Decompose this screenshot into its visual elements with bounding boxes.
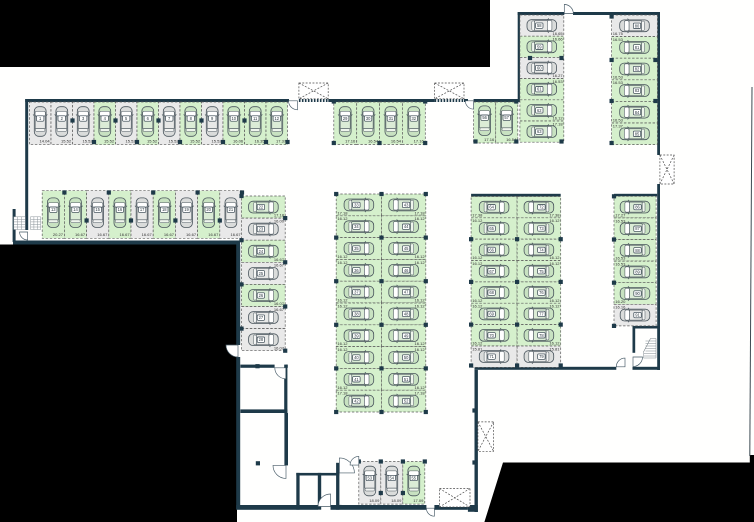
svg-text:46: 46	[404, 268, 409, 273]
svg-text:20.27: 20.27	[53, 232, 64, 237]
svg-text:39: 39	[354, 333, 359, 338]
svg-text:50: 50	[404, 355, 409, 360]
svg-text:91: 91	[635, 313, 640, 318]
svg-text:17.18: 17.18	[414, 391, 425, 396]
svg-text:16.12: 16.12	[472, 341, 483, 346]
svg-text:17.16: 17.16	[484, 137, 495, 142]
svg-text:55: 55	[412, 476, 417, 481]
svg-text:16.67: 16.67	[230, 232, 241, 237]
svg-text:38: 38	[354, 311, 359, 316]
svg-text:16.67: 16.67	[164, 232, 175, 237]
svg-text:15.52: 15.52	[211, 139, 222, 144]
svg-text:15: 15	[95, 207, 100, 212]
svg-text:19: 19	[184, 207, 189, 212]
svg-text:16.75: 16.75	[613, 31, 624, 36]
svg-text:16.67: 16.67	[75, 232, 86, 237]
svg-text:31: 31	[389, 116, 394, 121]
svg-text:17.18: 17.18	[414, 210, 425, 215]
svg-text:79: 79	[539, 354, 544, 359]
svg-text:16.12: 16.12	[337, 298, 348, 303]
svg-text:29: 29	[343, 116, 348, 121]
svg-text:15.52: 15.52	[125, 139, 136, 144]
svg-text:82: 82	[635, 67, 640, 72]
svg-text:16.12: 16.12	[337, 303, 348, 308]
svg-text:16.53: 16.53	[615, 262, 626, 267]
svg-text:48: 48	[404, 311, 409, 316]
svg-text:16.53: 16.53	[615, 218, 626, 223]
svg-text:49: 49	[404, 333, 409, 338]
svg-text:15.52: 15.52	[82, 139, 93, 144]
svg-text:16.12: 16.12	[337, 385, 348, 390]
svg-text:88: 88	[635, 248, 640, 253]
svg-text:15.52: 15.52	[61, 139, 72, 144]
svg-text:18.09: 18.09	[369, 498, 380, 503]
svg-text:16.12: 16.12	[414, 303, 425, 308]
svg-text:35: 35	[354, 246, 359, 251]
svg-text:68: 68	[489, 290, 494, 295]
svg-text:17.18: 17.18	[337, 210, 348, 215]
svg-text:16.12: 16.12	[414, 260, 425, 265]
svg-text:36: 36	[354, 268, 359, 273]
svg-text:80: 80	[635, 23, 640, 28]
svg-text:78: 78	[539, 333, 544, 338]
svg-text:42: 42	[354, 399, 359, 404]
svg-text:17.18: 17.18	[552, 121, 563, 126]
svg-text:11: 11	[253, 116, 258, 121]
svg-text:16.12: 16.12	[549, 255, 560, 260]
svg-text:26: 26	[259, 293, 264, 298]
svg-text:73: 73	[539, 226, 544, 231]
svg-text:85: 85	[635, 131, 640, 136]
svg-text:33: 33	[354, 203, 359, 208]
svg-text:16.12: 16.12	[414, 347, 425, 352]
svg-text:15.52: 15.52	[168, 139, 179, 144]
svg-text:40: 40	[354, 355, 359, 360]
svg-text:84: 84	[635, 110, 640, 115]
svg-text:16.12: 16.12	[472, 255, 483, 260]
svg-text:17: 17	[140, 207, 145, 212]
svg-text:90: 90	[635, 291, 640, 296]
svg-text:18: 18	[162, 207, 167, 212]
svg-text:14: 14	[73, 207, 78, 212]
svg-text:16.20: 16.20	[615, 299, 626, 304]
svg-text:14.04: 14.04	[39, 139, 50, 144]
svg-text:17.37: 17.37	[613, 123, 624, 128]
svg-text:72: 72	[539, 205, 544, 210]
svg-text:54: 54	[390, 476, 395, 481]
svg-text:16.54: 16.54	[368, 138, 379, 143]
svg-text:16.67: 16.67	[97, 232, 108, 237]
svg-text:16.53: 16.53	[613, 80, 624, 85]
svg-text:16.12: 16.12	[549, 218, 560, 223]
svg-text:16.12: 16.12	[549, 261, 560, 266]
svg-text:34: 34	[354, 224, 359, 229]
svg-text:20: 20	[206, 207, 211, 212]
svg-text:59: 59	[537, 44, 542, 49]
svg-text:23: 23	[259, 227, 264, 232]
svg-text:16.12: 16.12	[414, 298, 425, 303]
svg-text:16.53: 16.53	[613, 74, 624, 79]
svg-text:56: 56	[482, 115, 487, 120]
svg-text:16.66: 16.66	[552, 37, 563, 42]
svg-text:52: 52	[404, 399, 409, 404]
svg-text:16.12: 16.12	[549, 304, 560, 309]
svg-text:16.12: 16.12	[414, 216, 425, 221]
svg-text:16.12: 16.12	[472, 304, 483, 309]
svg-text:25: 25	[259, 271, 264, 276]
svg-text:17.38: 17.38	[472, 212, 483, 217]
svg-text:28: 28	[259, 337, 264, 342]
svg-text:71: 71	[489, 354, 494, 359]
svg-text:16.12: 16.12	[414, 385, 425, 390]
svg-text:74: 74	[539, 247, 544, 252]
svg-text:15.81: 15.81	[549, 346, 560, 351]
svg-text:32: 32	[412, 116, 417, 121]
svg-text:70: 70	[489, 333, 494, 338]
svg-text:65: 65	[489, 226, 494, 231]
svg-text:16.12: 16.12	[472, 298, 483, 303]
svg-text:12: 12	[275, 116, 280, 121]
svg-text:27: 27	[259, 315, 264, 320]
svg-text:15.52: 15.52	[190, 139, 201, 144]
svg-text:61: 61	[537, 87, 542, 92]
svg-text:66: 66	[489, 247, 494, 252]
svg-text:51: 51	[404, 377, 409, 382]
svg-text:67: 67	[489, 269, 494, 274]
svg-text:75: 75	[539, 269, 544, 274]
svg-text:60: 60	[537, 66, 542, 71]
svg-text:16.12: 16.12	[472, 261, 483, 266]
svg-text:62: 62	[537, 108, 542, 113]
svg-text:89: 89	[635, 270, 640, 275]
svg-text:16.53: 16.53	[613, 37, 624, 42]
svg-text:77: 77	[539, 312, 544, 317]
svg-text:22: 22	[259, 205, 264, 210]
svg-text:15.52: 15.52	[147, 139, 158, 144]
svg-text:16.35: 16.35	[254, 139, 265, 144]
svg-text:16.53: 16.53	[615, 256, 626, 261]
svg-text:15.81: 15.81	[472, 346, 483, 351]
svg-text:16.12: 16.12	[414, 254, 425, 259]
svg-text:45: 45	[404, 246, 409, 251]
svg-text:16.65: 16.65	[552, 31, 563, 36]
svg-text:17.18: 17.18	[337, 391, 348, 396]
svg-text:41: 41	[354, 377, 359, 382]
svg-text:16.12: 16.12	[337, 341, 348, 346]
svg-text:16.16: 16.16	[615, 305, 626, 310]
svg-text:69: 69	[489, 312, 494, 317]
svg-text:16.12: 16.12	[472, 218, 483, 223]
svg-text:15.52: 15.52	[104, 139, 115, 144]
svg-text:16.67: 16.67	[142, 232, 153, 237]
svg-text:57: 57	[504, 115, 509, 120]
svg-text:76: 76	[539, 290, 544, 295]
svg-text:86: 86	[635, 205, 640, 210]
svg-text:30: 30	[366, 116, 371, 121]
svg-text:17.16: 17.16	[345, 138, 356, 143]
svg-text:16.27: 16.27	[552, 73, 563, 78]
svg-text:16.12: 16.12	[337, 260, 348, 265]
svg-text:44: 44	[404, 224, 409, 229]
svg-text:16.12: 16.12	[549, 298, 560, 303]
svg-text:17.37: 17.37	[276, 139, 287, 144]
svg-text:81: 81	[635, 45, 640, 50]
svg-text:16.12: 16.12	[552, 116, 563, 121]
svg-text:17.09: 17.09	[413, 498, 424, 503]
svg-text:16.12: 16.12	[337, 347, 348, 352]
svg-text:58: 58	[537, 23, 542, 28]
svg-text:53: 53	[368, 476, 373, 481]
svg-text:16.53: 16.53	[613, 118, 624, 123]
svg-text:24: 24	[259, 249, 264, 254]
svg-text:18.09: 18.09	[391, 498, 402, 503]
svg-text:16.12: 16.12	[337, 254, 348, 259]
svg-text:63: 63	[537, 129, 542, 134]
svg-text:16.67: 16.67	[119, 232, 130, 237]
svg-text:10: 10	[232, 116, 237, 121]
svg-text:16.12: 16.12	[414, 341, 425, 346]
svg-text:64: 64	[489, 205, 494, 210]
svg-text:21: 21	[229, 207, 234, 212]
svg-text:16.12: 16.12	[337, 216, 348, 221]
svg-text:16.54: 16.54	[391, 138, 402, 143]
svg-text:17.27: 17.27	[615, 213, 626, 218]
svg-text:16.67: 16.67	[186, 232, 197, 237]
svg-text:16.67: 16.67	[208, 232, 219, 237]
svg-text:17.16: 17.16	[414, 138, 425, 143]
svg-text:16.06: 16.06	[233, 139, 244, 144]
svg-text:87: 87	[635, 226, 640, 231]
svg-text:17.38: 17.38	[549, 212, 560, 217]
svg-text:83: 83	[635, 88, 640, 93]
svg-text:16.53: 16.53	[552, 79, 563, 84]
svg-text:43: 43	[404, 203, 409, 208]
svg-text:13: 13	[51, 207, 56, 212]
svg-text:16.12: 16.12	[549, 341, 560, 346]
svg-text:47: 47	[404, 290, 409, 295]
svg-text:37: 37	[354, 290, 359, 295]
svg-text:16: 16	[118, 207, 123, 212]
